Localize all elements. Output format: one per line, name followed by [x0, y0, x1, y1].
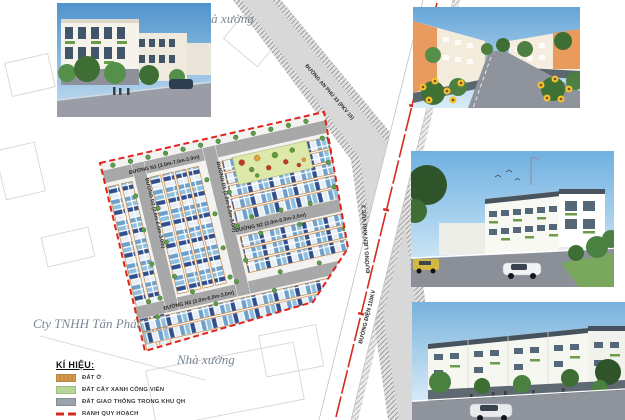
car — [169, 79, 193, 89]
company-label: Cty TNHH Tân Phát — [33, 316, 141, 331]
boundary-dash-swatch — [56, 410, 76, 418]
rendering-photo-middle-right — [411, 151, 614, 287]
rendering-photo-top-left — [57, 3, 211, 117]
green-land-swatch — [56, 386, 76, 394]
traffic-land-swatch — [56, 398, 76, 406]
people — [113, 87, 130, 95]
legend-item-dat-o: ĐẤT Ở — [56, 374, 196, 382]
rendering-photo-top-right — [413, 7, 580, 108]
legend-label: ĐẤT CÂY XANH CÔNG VIÊN — [82, 387, 164, 393]
flyer-canvas: ĐƯỜNG N1 (3.0m-7.0m-3.0m) ĐƯỜNG N2 (3.0m… — [0, 0, 625, 420]
lot-land-swatch — [56, 374, 76, 382]
legend-item-giao-thong: ĐẤT GIAO THÔNG TRONG KHU QH — [56, 398, 196, 406]
rendering-photo-bottom-right — [412, 302, 625, 420]
legend: KÍ HIỆU: ĐẤT Ở ĐẤT CÂY XANH CÔNG VIÊN ĐẤ… — [56, 360, 196, 418]
legend-label: ĐẤT GIAO THÔNG TRONG KHU QH — [82, 399, 185, 405]
legend-label: RANH QUY HOẠCH — [82, 411, 138, 417]
legend-item-ranh-quy-hoach: RANH QUY HOẠCH — [56, 410, 196, 418]
legend-label: ĐẤT Ở — [82, 375, 101, 381]
legend-title: KÍ HIỆU: — [56, 360, 196, 370]
legend-item-cay-xanh: ĐẤT CÂY XANH CÔNG VIÊN — [56, 386, 196, 394]
